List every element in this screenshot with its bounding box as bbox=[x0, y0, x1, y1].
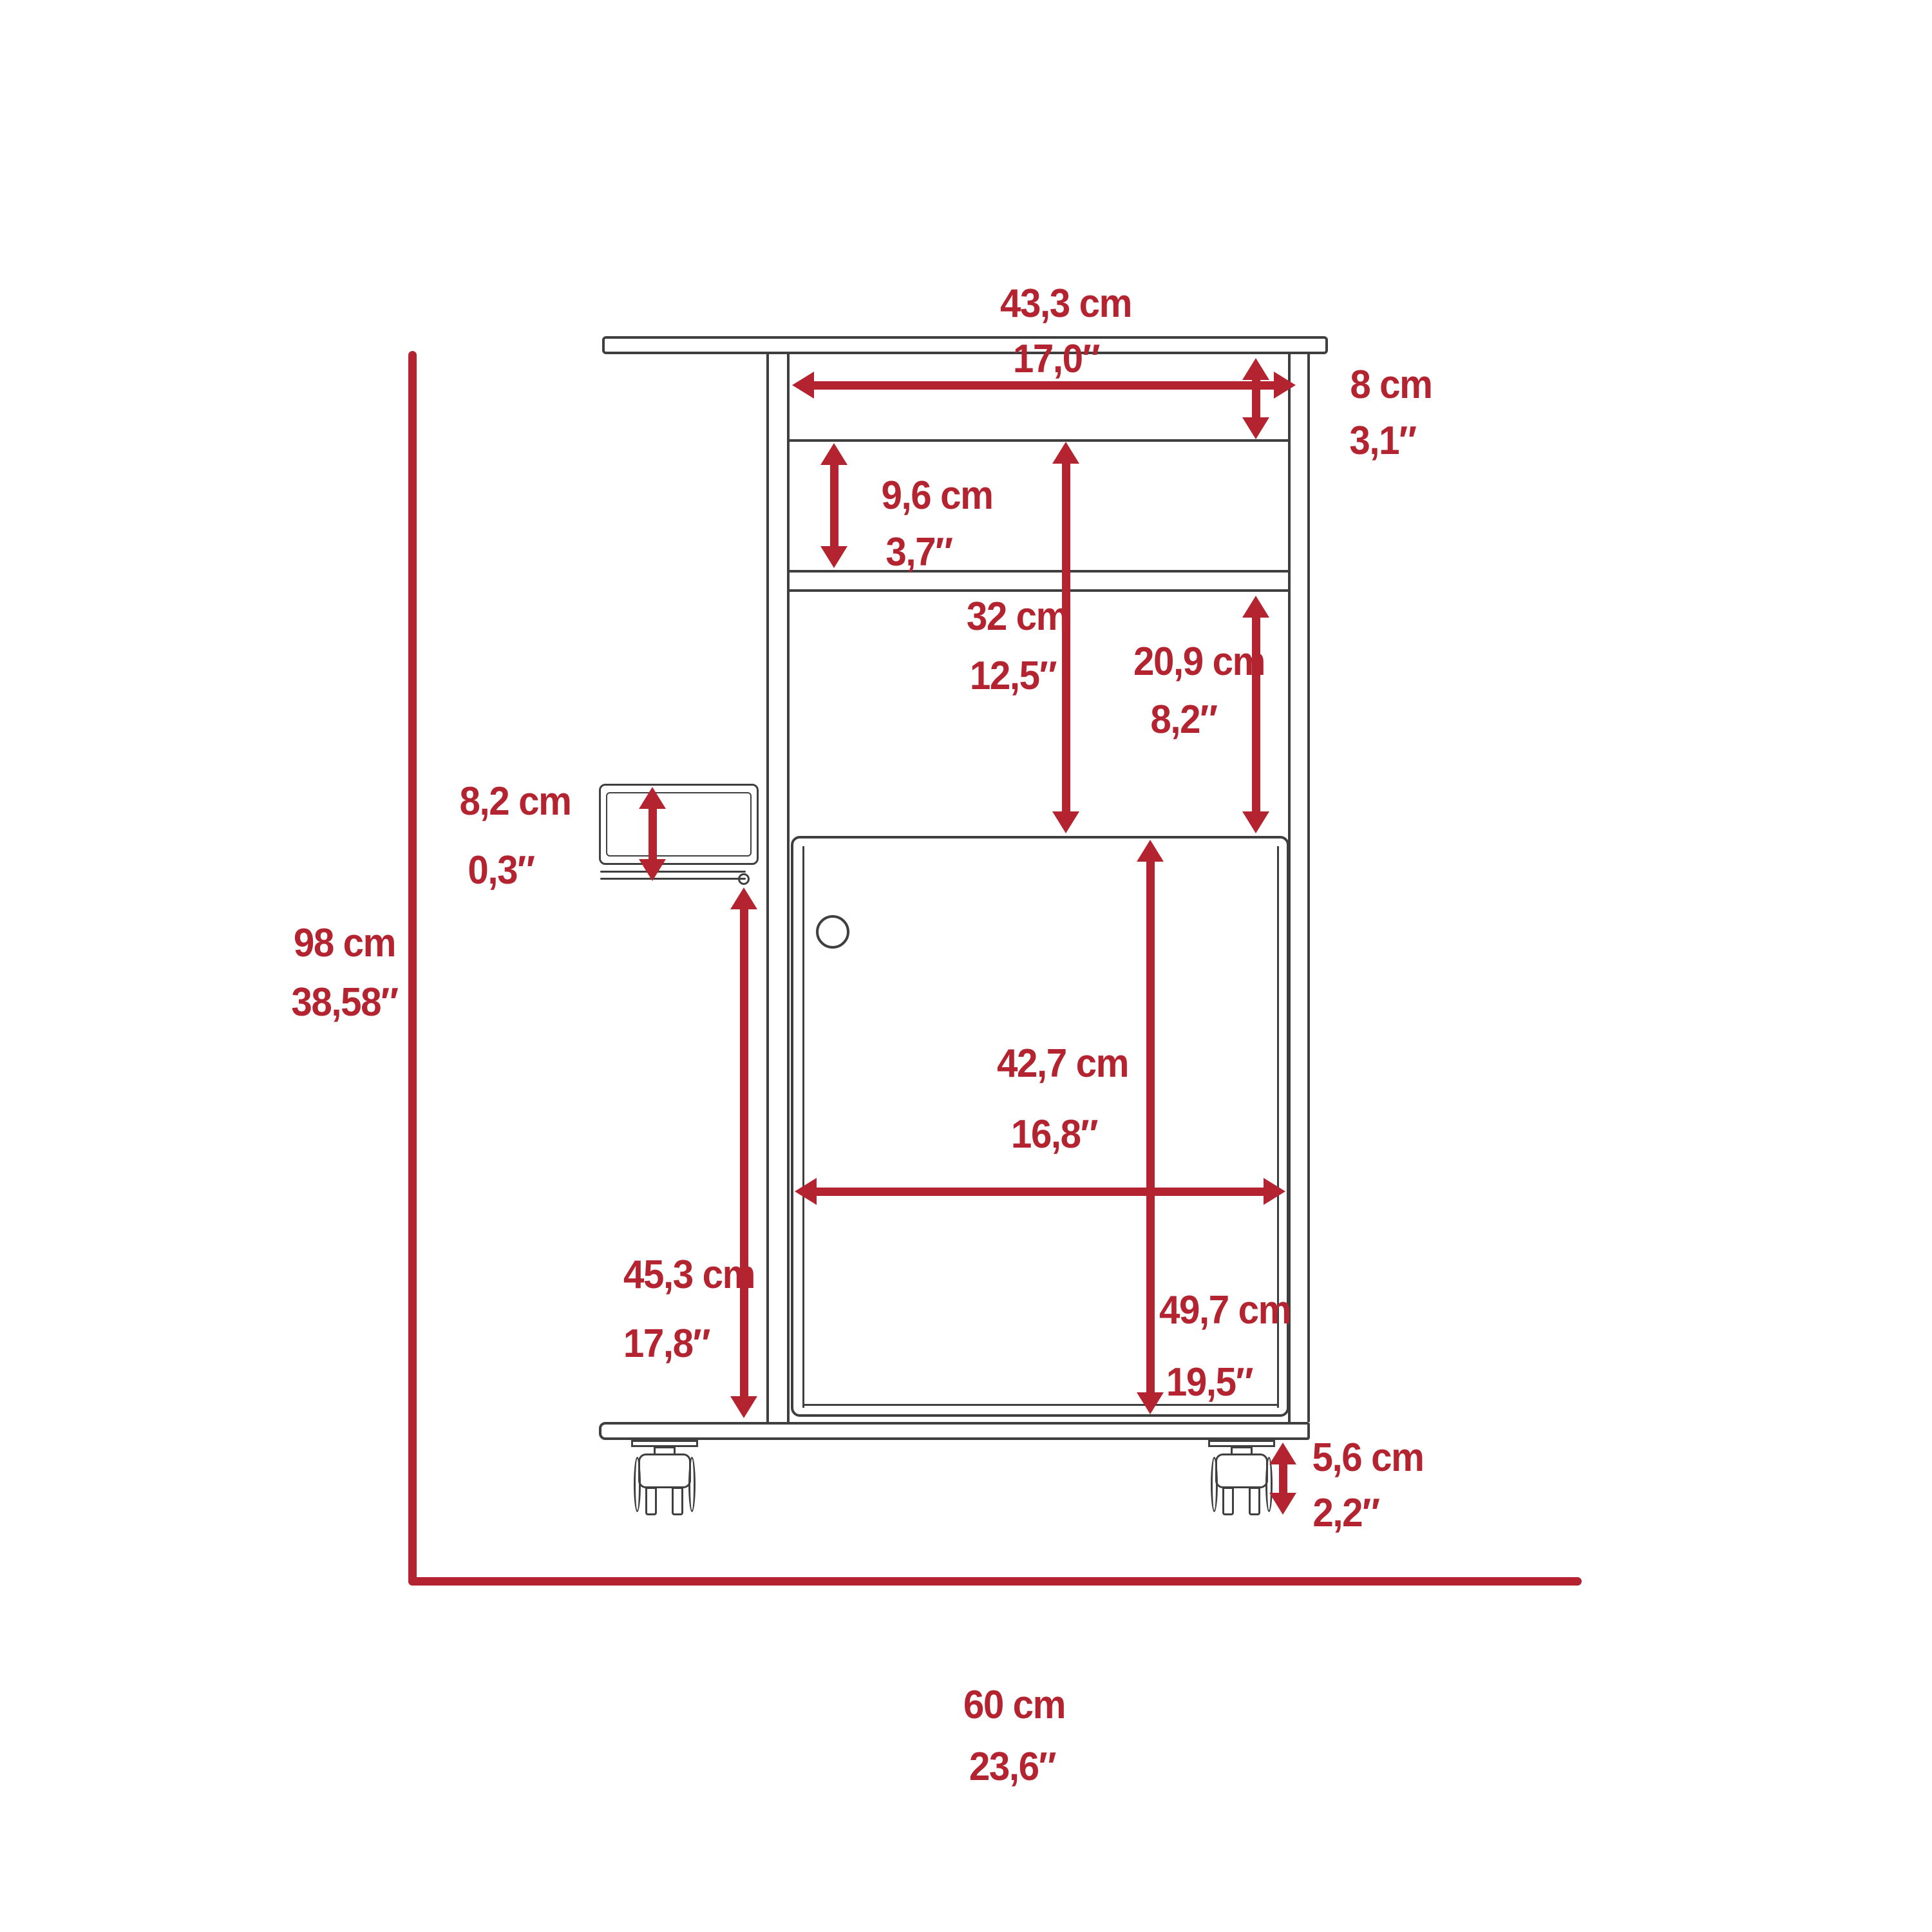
label-left-lower-cm: 45,3 cm bbox=[623, 1255, 755, 1295]
caster-left-wheel-arc-b bbox=[688, 1457, 696, 1512]
label-door-height-cm: 49,7 cm bbox=[1159, 1291, 1291, 1331]
dim-arrow-shelf-clear bbox=[1242, 596, 1270, 833]
label-left-lower-in: 17,8″ bbox=[623, 1324, 710, 1364]
label-door-width-in: 16,8″ bbox=[1011, 1115, 1097, 1155]
label-overall-width-in: 23,6″ bbox=[969, 1747, 1056, 1787]
right-panel-outer-line bbox=[1307, 354, 1310, 1422]
caster-right-fork-b bbox=[1249, 1487, 1260, 1515]
shelf-slab-top-line bbox=[790, 570, 1288, 573]
dimension-diagram: 43,3 cm 17,0″ 8 cm 3,1″ 9,6 cm 3,7″ 32 c… bbox=[0, 0, 1932, 1932]
label-mid-niche-in: 3,7″ bbox=[885, 533, 952, 573]
caster-right-fork-a bbox=[1222, 1487, 1234, 1515]
dim-arrow-mid-niche bbox=[820, 443, 848, 568]
caster-right-wheel-arc-a bbox=[1211, 1457, 1218, 1512]
label-overall-height-in: 38,58″ bbox=[291, 983, 397, 1023]
dim-arrow-door-width bbox=[795, 1177, 1285, 1206]
dim-arrow-left-lower bbox=[730, 887, 758, 1418]
left-panel-inner-line bbox=[787, 354, 790, 1422]
dim-arrow-caster bbox=[1269, 1443, 1297, 1515]
shelf-line-upper bbox=[790, 439, 1288, 442]
dim-arrow-top-niche bbox=[1242, 358, 1270, 439]
dim-arrow-glass-rack bbox=[638, 787, 667, 881]
tabletop bbox=[602, 336, 1328, 354]
left-panel-outer-line bbox=[766, 354, 769, 1422]
label-overall-width-cm: 60 cm bbox=[963, 1685, 1065, 1725]
glass-rack-rail-bottom bbox=[600, 878, 746, 880]
glass-rack-rail-top bbox=[600, 871, 746, 873]
label-caster-cm: 5,6 cm bbox=[1312, 1438, 1424, 1478]
caster-left-wheel-arc-a bbox=[634, 1457, 641, 1512]
door-inner-left-line bbox=[802, 846, 804, 1408]
caster-left-fork-a bbox=[645, 1487, 657, 1515]
base-board bbox=[599, 1422, 1310, 1440]
label-top-niche-in: 3,1″ bbox=[1349, 421, 1416, 461]
overall-height-line bbox=[408, 351, 417, 1586]
label-glass-rack-cm: 8,2 cm bbox=[460, 782, 571, 822]
label-top-width-in: 17,0″ bbox=[1013, 339, 1099, 379]
caster-left-housing bbox=[638, 1454, 691, 1488]
shelf-slab-bottom-line bbox=[790, 589, 1288, 592]
label-door-height-in: 19,5″ bbox=[1166, 1363, 1253, 1403]
label-overall-height-cm: 98 cm bbox=[294, 923, 395, 963]
label-top-niche-cm: 8 cm bbox=[1350, 365, 1432, 405]
label-mid-niche-cm: 9,6 cm bbox=[882, 476, 993, 516]
glass-rack-rail-hook bbox=[738, 873, 750, 885]
label-glass-rack-in: 0,3″ bbox=[468, 851, 534, 891]
label-top-width-cm: 43,3 cm bbox=[1000, 284, 1132, 324]
label-open-height-cm: 32 cm bbox=[967, 597, 1068, 637]
caster-right-housing bbox=[1215, 1454, 1268, 1488]
overall-width-line bbox=[408, 1577, 1582, 1586]
label-caster-in: 2,2″ bbox=[1312, 1493, 1379, 1533]
label-open-height-in: 12,5″ bbox=[970, 656, 1056, 696]
label-shelf-clear-cm: 20,9 cm bbox=[1133, 642, 1265, 682]
glass-rack-inner bbox=[606, 792, 752, 857]
label-shelf-clear-in: 8,2″ bbox=[1150, 700, 1217, 740]
label-door-width-cm: 42,7 cm bbox=[997, 1044, 1128, 1084]
door-knob bbox=[816, 915, 849, 949]
caster-left-fork-b bbox=[672, 1487, 683, 1515]
